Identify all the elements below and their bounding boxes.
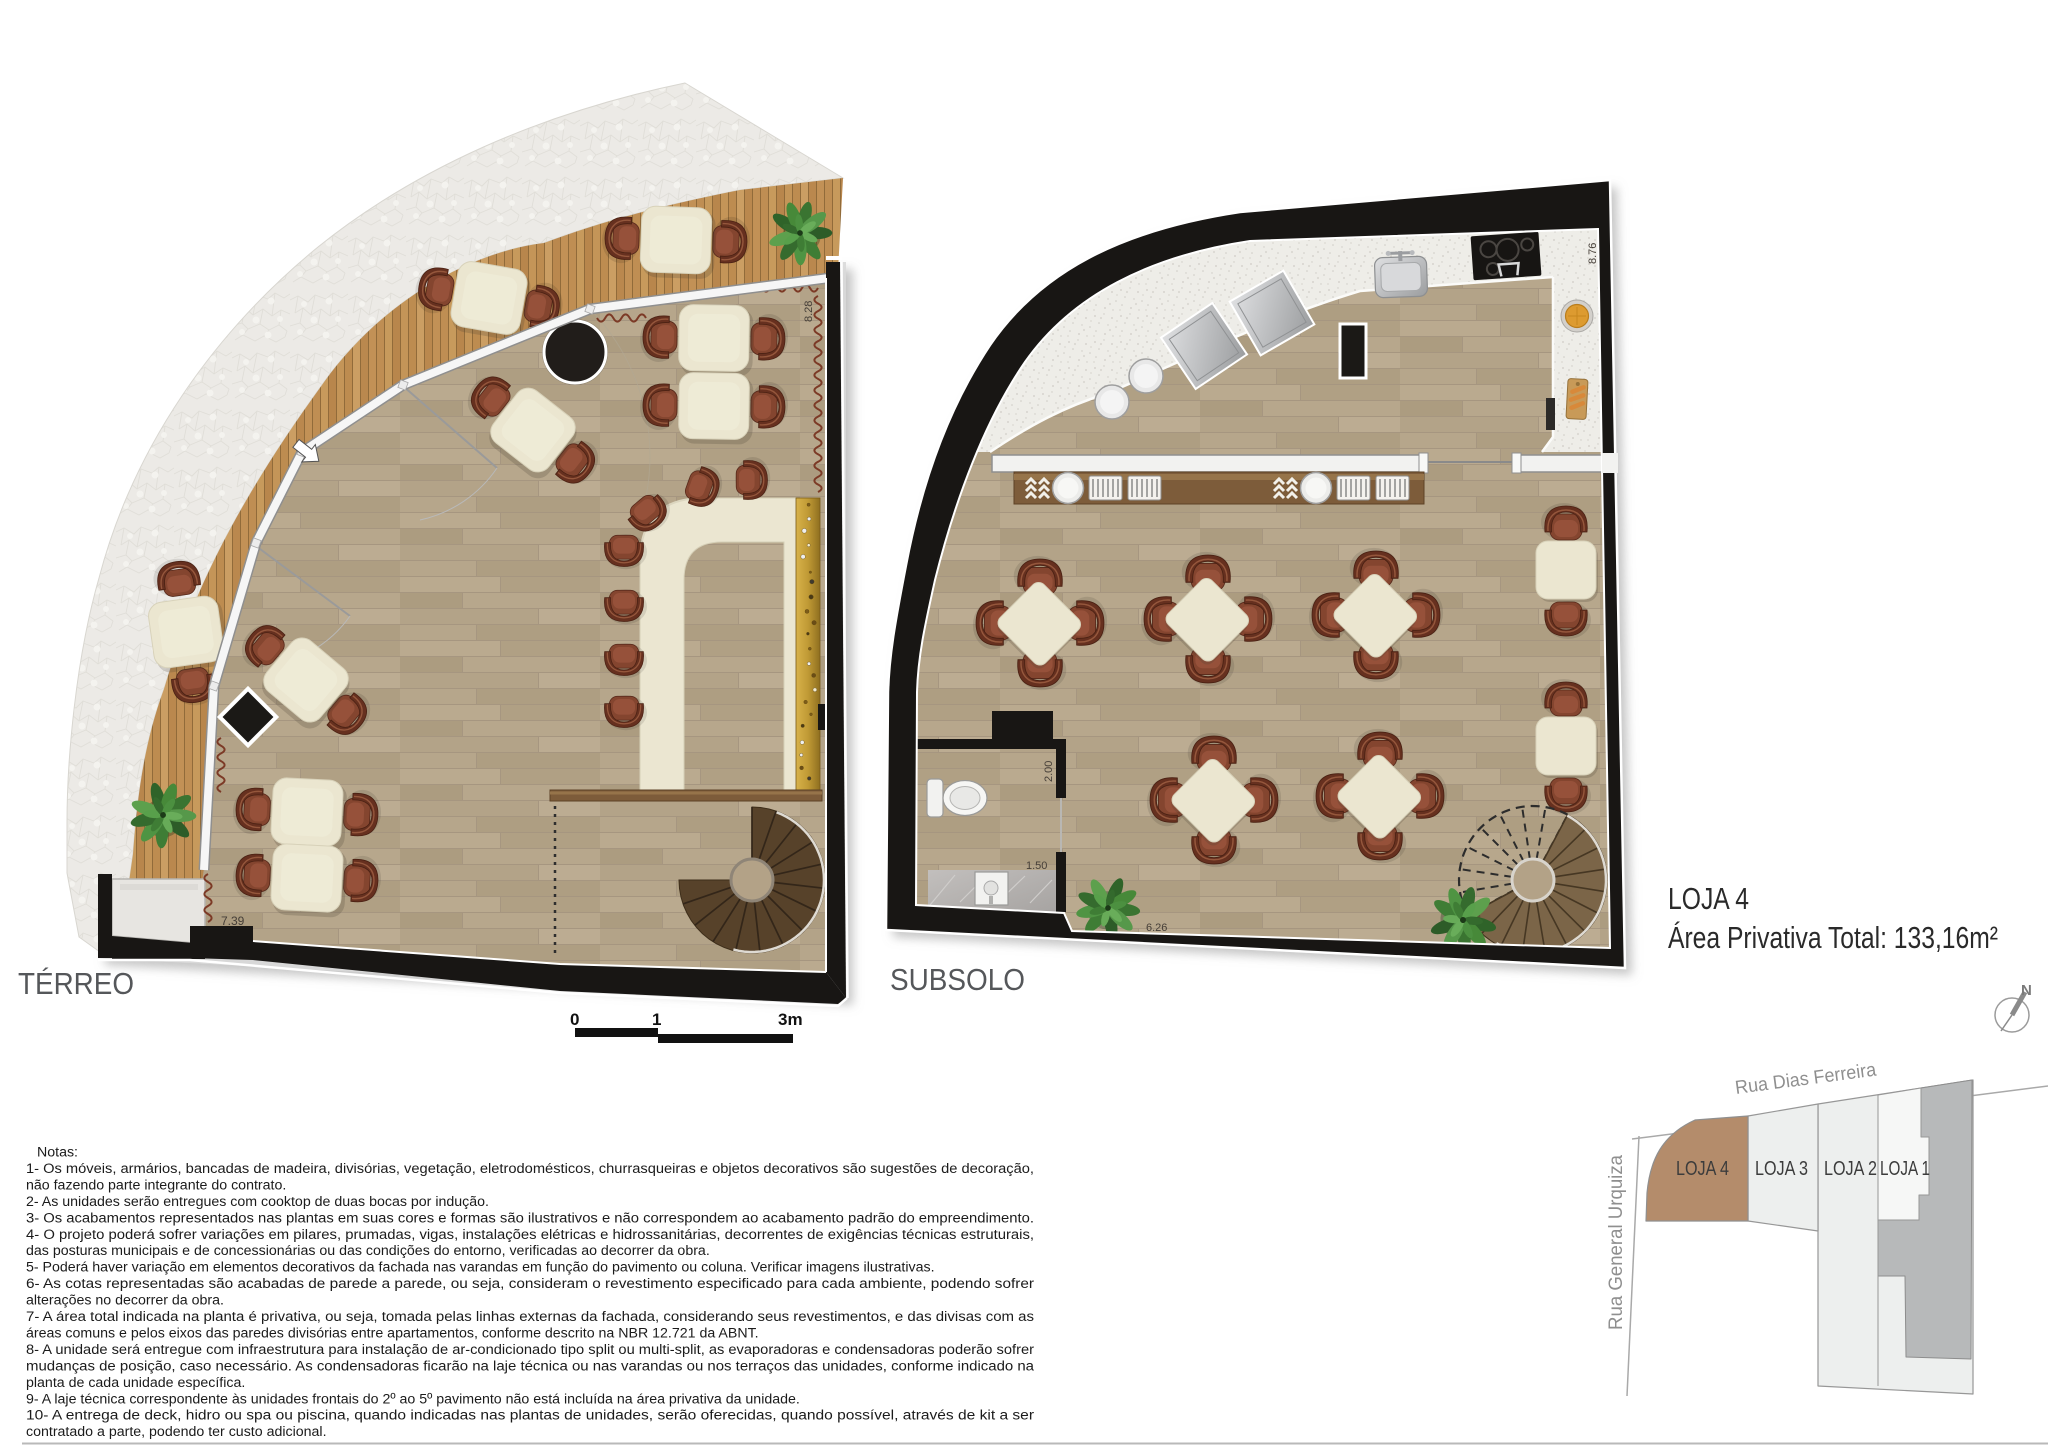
svg-text:1- Os móveis, armários, bancad: 1- Os móveis, armários, bancadas de made…	[26, 1161, 1034, 1177]
svg-text:10- A entrega de deck, hid: 10- A entrega de deck, hidro ou spa ou p…	[26, 1408, 1034, 1424]
svg-text:SUBSOLO: SUBSOLO	[890, 962, 1025, 997]
svg-text:LOJA 1: LOJA 1	[1880, 1158, 1930, 1180]
svg-text:7.39: 7.39	[221, 914, 245, 928]
svg-text:3m: 3m	[778, 1010, 803, 1029]
svg-text:2.00: 2.00	[1043, 761, 1055, 782]
svg-text:6- As cotas representadas s: 6- As cotas representadas são acabadas d…	[26, 1276, 1034, 1292]
svg-text:2- As unidades serão entregues: 2- As unidades serão entregues com cookt…	[26, 1194, 489, 1210]
svg-text:3- Os acabamentos representad: 3- Os acabamentos representados nas plan…	[26, 1210, 1034, 1226]
svg-text:LOJA 3: LOJA 3	[1755, 1158, 1808, 1180]
svg-text:LOJA 4: LOJA 4	[1668, 881, 1749, 916]
svg-text:7- A área total indicada na: 7- A área total indicada na planta é pri…	[26, 1309, 1034, 1325]
svg-text:N: N	[2021, 982, 2032, 999]
svg-text:não fazendo parte integrante d: não fazendo parte integrante do contrato…	[26, 1177, 286, 1193]
svg-text:TÉRREO: TÉRREO	[18, 966, 134, 1001]
svg-text:LOJA 4: LOJA 4	[1676, 1158, 1729, 1180]
svg-text:das posturas municipais e de c: das posturas municipais e de concessioná…	[26, 1243, 710, 1259]
svg-text:1.50: 1.50	[1026, 860, 1047, 872]
svg-text:Rua General Urquiza: Rua General Urquiza	[1606, 1155, 1627, 1330]
svg-text:4- O projeto poderá sofrer var: 4- O projeto poderá sofrer variações em …	[26, 1227, 1034, 1243]
svg-text:1: 1	[652, 1010, 661, 1029]
svg-text:alterações no decorrer da obra: alterações no decorrer da obra.	[26, 1293, 224, 1309]
svg-text:LOJA 2: LOJA 2	[1824, 1158, 1877, 1180]
svg-text:8.76: 8.76	[1587, 243, 1599, 264]
svg-text:9- A laje técnica corresponden: 9- A laje técnica correspondente às unid…	[26, 1391, 800, 1407]
svg-text:5- Poderá haver variação em el: 5- Poderá haver variação em elementos de…	[26, 1260, 935, 1276]
svg-text:Área Privativa Total: 133,16m²: Área Privativa Total: 133,16m²	[1668, 920, 1998, 955]
svg-text:planta de cada unidade específ: planta de cada unidade específica.	[26, 1375, 245, 1391]
svg-text:áreas comuns e pelos eixos das: áreas comuns e pelos eixos das paredes d…	[26, 1326, 759, 1342]
svg-text:0: 0	[570, 1010, 579, 1029]
svg-text:6.26: 6.26	[1146, 922, 1167, 934]
svg-text:mudanças de posição, caso nec: mudanças de posição, caso necessário. As…	[26, 1358, 1034, 1374]
svg-text:8.28: 8.28	[803, 301, 815, 322]
svg-text:Notas:: Notas:	[37, 1145, 78, 1161]
svg-text:contratado a parte, podendo te: contratado a parte, podendo ter custo ad…	[26, 1424, 327, 1440]
svg-text:8- A unidade será entregue com: 8- A unidade será entregue com infraestr…	[26, 1342, 1034, 1358]
